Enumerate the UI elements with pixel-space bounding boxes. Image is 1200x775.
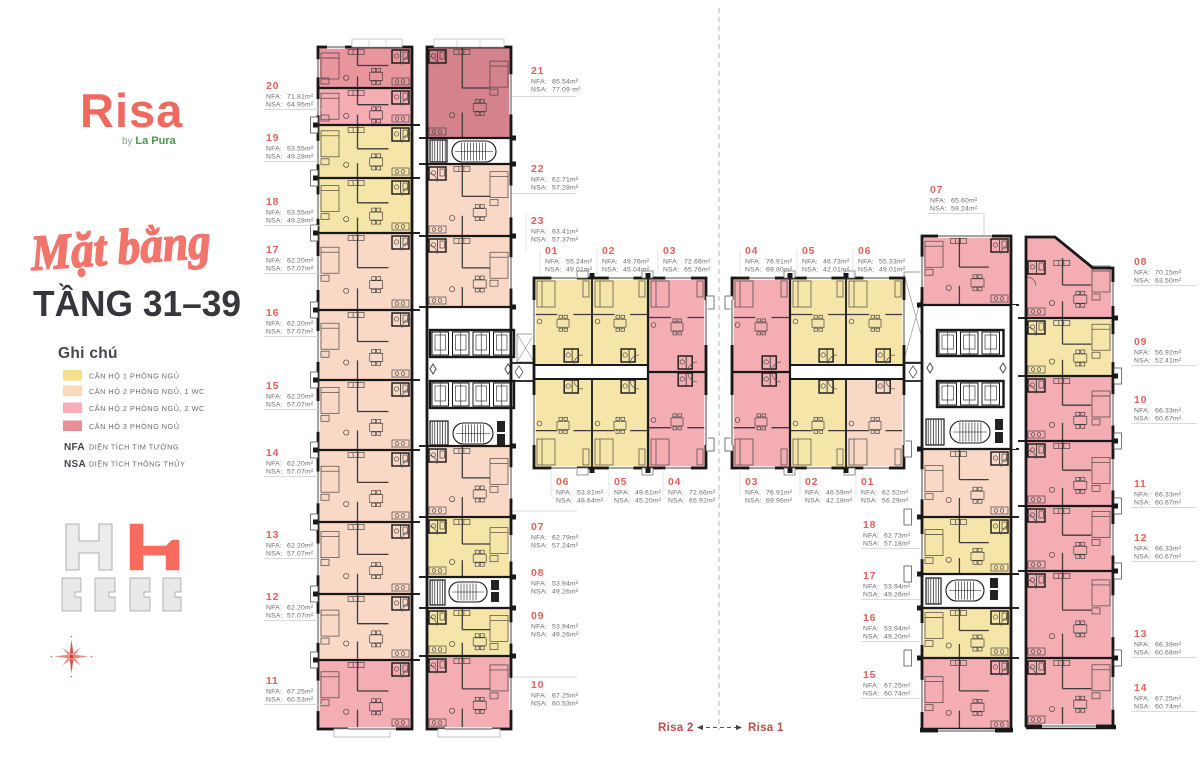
svg-text:DIỆN TÍCH THÔNG THỦY: DIỆN TÍCH THÔNG THỦY	[89, 460, 185, 469]
svg-text:NFA:: NFA:	[531, 581, 547, 588]
svg-text:67.25m²: 67.25m²	[884, 683, 911, 690]
svg-text:14: 14	[1134, 682, 1147, 694]
svg-text:CĂN HỘ 2 PHÒNG NGỦ, 2 WC: CĂN HỘ 2 PHÒNG NGỦ, 2 WC	[89, 404, 205, 413]
svg-text:NSA:: NSA:	[1134, 500, 1151, 507]
svg-text:10: 10	[531, 679, 544, 691]
svg-text:57.28m²: 57.28m²	[552, 185, 579, 192]
svg-text:02: 02	[805, 476, 818, 488]
svg-text:53.94m²: 53.94m²	[884, 584, 911, 591]
svg-text:NSA:: NSA:	[531, 632, 548, 639]
svg-text:NFA:: NFA:	[266, 258, 282, 265]
svg-text:66.39m²: 66.39m²	[1155, 642, 1182, 649]
svg-text:NSA:: NSA:	[266, 469, 283, 476]
svg-text:Risa 1: Risa 1	[748, 722, 784, 734]
svg-text:48.64m²: 48.64m²	[577, 498, 604, 505]
svg-text:NSA:: NSA:	[861, 498, 878, 505]
svg-text:53.94m²: 53.94m²	[552, 581, 579, 588]
svg-text:NSA:: NSA:	[266, 218, 283, 225]
svg-text:69.96m²: 69.96m²	[766, 498, 793, 505]
svg-text:49.28m²: 49.28m²	[287, 154, 314, 161]
svg-text:05: 05	[614, 476, 627, 488]
svg-text:55.24m²: 55.24m²	[566, 259, 593, 266]
svg-text:NFA:: NFA:	[858, 259, 874, 266]
svg-text:62.20m²: 62.20m²	[287, 543, 314, 550]
svg-text:NFA:: NFA:	[531, 79, 547, 86]
svg-text:55.33m²: 55.33m²	[879, 259, 906, 266]
svg-text:NFA:: NFA:	[1134, 546, 1150, 553]
svg-text:57.07m²: 57.07m²	[287, 613, 314, 620]
svg-text:57.18m²: 57.18m²	[884, 541, 911, 548]
svg-text:15: 15	[863, 669, 876, 681]
svg-text:67.25m²: 67.25m²	[552, 693, 579, 700]
svg-text:NSA:: NSA:	[1134, 278, 1151, 285]
svg-text:NSA:: NSA:	[745, 498, 762, 505]
svg-text:45.20m²: 45.20m²	[635, 498, 662, 505]
svg-text:49.01m²: 49.01m²	[879, 267, 906, 274]
svg-text:03: 03	[663, 245, 676, 257]
svg-text:76.91m²: 76.91m²	[766, 259, 793, 266]
svg-text:16: 16	[266, 307, 279, 319]
svg-text:NFA:: NFA:	[863, 626, 879, 633]
svg-text:03: 03	[745, 476, 758, 488]
svg-text:NFA:: NFA:	[266, 605, 282, 612]
svg-text:17: 17	[863, 570, 876, 582]
svg-text:23: 23	[531, 215, 544, 227]
svg-text:42.01m²: 42.01m²	[823, 267, 850, 274]
svg-text:NSA:: NSA:	[1134, 704, 1151, 711]
svg-text:49.20m²: 49.20m²	[884, 634, 911, 641]
svg-text:49.01m²: 49.01m²	[566, 267, 593, 274]
svg-text:NSA:: NSA:	[266, 613, 283, 620]
svg-text:NSA:: NSA:	[266, 102, 283, 109]
svg-text:NFA:: NFA:	[663, 259, 679, 266]
svg-text:NFA:: NFA:	[614, 490, 630, 497]
svg-text:NFA:: NFA:	[668, 490, 684, 497]
svg-text:62.52m²: 62.52m²	[882, 490, 909, 497]
svg-text:NSA:: NSA:	[805, 498, 822, 505]
svg-text:Risa: Risa	[80, 84, 183, 137]
svg-text:08: 08	[531, 567, 544, 579]
svg-text:53.55m²: 53.55m²	[287, 210, 314, 217]
svg-text:18: 18	[863, 519, 876, 531]
svg-text:NFA:: NFA:	[802, 259, 818, 266]
svg-text:11: 11	[1134, 478, 1147, 490]
svg-text:64.95m²: 64.95m²	[287, 102, 314, 109]
svg-text:Ghi chú: Ghi chú	[58, 345, 118, 362]
svg-text:NFA:: NFA:	[266, 146, 282, 153]
svg-text:60.67m²: 60.67m²	[1155, 554, 1182, 561]
svg-text:57.07m²: 57.07m²	[287, 329, 314, 336]
svg-text:NSA:: NSA:	[1134, 554, 1151, 561]
svg-text:NFA:: NFA:	[863, 584, 879, 591]
svg-text:53.81m²: 53.81m²	[577, 490, 604, 497]
svg-text:NSA:: NSA:	[602, 267, 619, 274]
svg-text:NSA:: NSA:	[531, 701, 548, 708]
svg-text:20: 20	[266, 80, 279, 92]
svg-text:60.53m²: 60.53m²	[287, 697, 314, 704]
svg-text:NFA:: NFA:	[1134, 696, 1150, 703]
svg-text:67.25m²: 67.25m²	[287, 689, 314, 696]
svg-text:77.09 m²: 77.09 m²	[552, 87, 581, 94]
svg-text:NFA:: NFA:	[531, 535, 547, 542]
svg-text:62.20m²: 62.20m²	[287, 461, 314, 468]
svg-text:62.79m²: 62.79m²	[552, 535, 579, 542]
svg-text:60.53m²: 60.53m²	[552, 701, 579, 708]
svg-text:NFA:: NFA:	[1134, 270, 1150, 277]
svg-text:15: 15	[266, 380, 279, 392]
svg-text:76.91m²: 76.91m²	[766, 490, 793, 497]
svg-text:19: 19	[266, 132, 279, 144]
svg-text:NSA:: NSA:	[556, 498, 573, 505]
svg-text:CĂN HỘ 2 PHÒNG NGỦ, 1 WC: CĂN HỘ 2 PHÒNG NGỦ, 1 WC	[89, 387, 205, 396]
svg-text:NSA:: NSA:	[545, 267, 562, 274]
svg-text:57.24m²: 57.24m²	[552, 543, 579, 550]
svg-text:NFA:: NFA:	[545, 259, 561, 266]
svg-text:NFA: NFA	[64, 442, 85, 453]
svg-text:13: 13	[1134, 628, 1147, 640]
svg-text:52.41m²: 52.41m²	[1155, 358, 1182, 365]
svg-text:46.73m²: 46.73m²	[823, 259, 850, 266]
svg-text:16: 16	[863, 612, 876, 624]
svg-text:NFA:: NFA:	[1134, 642, 1150, 649]
svg-text:NFA:: NFA:	[602, 259, 618, 266]
svg-text:NFA:: NFA:	[531, 177, 547, 184]
svg-text:NFA:: NFA:	[1134, 350, 1150, 357]
svg-text:14: 14	[266, 447, 279, 459]
svg-text:62.20m²: 62.20m²	[287, 258, 314, 265]
svg-text:NFA:: NFA:	[531, 624, 547, 631]
svg-text:NSA:: NSA:	[663, 267, 680, 274]
svg-text:06: 06	[556, 476, 569, 488]
svg-text:53.94m²: 53.94m²	[552, 624, 579, 631]
svg-text:NFA:: NFA:	[266, 461, 282, 468]
svg-text:NSA:: NSA:	[531, 237, 548, 244]
svg-text:62.71m²: 62.71m²	[552, 177, 579, 184]
svg-text:63.50m²: 63.50m²	[1155, 278, 1182, 285]
svg-text:18: 18	[266, 196, 279, 208]
svg-text:05: 05	[802, 245, 815, 257]
svg-text:CĂN HỘ 3 PHÒNG NGỦ: CĂN HỘ 3 PHÒNG NGỦ	[89, 422, 180, 431]
svg-text:04: 04	[668, 476, 681, 488]
svg-text:10: 10	[1134, 394, 1147, 406]
svg-text:NSA:: NSA:	[863, 592, 880, 599]
svg-text:NFA:: NFA:	[805, 490, 821, 497]
svg-text:60.74m²: 60.74m²	[884, 691, 911, 698]
svg-text:60.67m²: 60.67m²	[1155, 416, 1182, 423]
svg-text:66.33m²: 66.33m²	[1155, 546, 1182, 553]
svg-text:NSA:: NSA:	[1134, 358, 1151, 365]
svg-text:53.55m²: 53.55m²	[287, 146, 314, 153]
svg-text:49.26m²: 49.26m²	[552, 632, 579, 639]
svg-text:NSA:: NSA:	[266, 154, 283, 161]
svg-text:49.28m²: 49.28m²	[287, 218, 314, 225]
svg-text:66.33m²: 66.33m²	[1155, 408, 1182, 415]
svg-text:49.26m²: 49.26m²	[884, 592, 911, 599]
svg-text:46.59m²: 46.59m²	[826, 490, 853, 497]
svg-text:09: 09	[1134, 336, 1147, 348]
svg-text:07: 07	[531, 521, 544, 533]
svg-text:NSA:: NSA:	[531, 589, 548, 596]
svg-text:NFA:: NFA:	[266, 94, 282, 101]
svg-text:NFA:: NFA:	[266, 210, 282, 217]
svg-text:21: 21	[531, 65, 544, 77]
svg-text:TẦNG 31–39: TẦNG 31–39	[33, 283, 241, 324]
svg-text:09: 09	[531, 610, 544, 622]
svg-text:NSA:: NSA:	[668, 498, 685, 505]
svg-text:08: 08	[1134, 256, 1147, 268]
svg-text:57.07m²: 57.07m²	[287, 469, 314, 476]
svg-text:NSA:: NSA:	[863, 691, 880, 698]
svg-text:NSA:: NSA:	[531, 87, 548, 94]
svg-text:NSA:: NSA:	[531, 543, 548, 550]
svg-text:NSA:: NSA:	[531, 185, 548, 192]
svg-text:NFA:: NFA:	[531, 229, 547, 236]
svg-text:72.66m²: 72.66m²	[689, 490, 716, 497]
svg-text:57.07m²: 57.07m²	[287, 266, 314, 273]
svg-text:NSA:: NSA:	[858, 267, 875, 274]
svg-text:56.92m²: 56.92m²	[1155, 350, 1182, 357]
svg-text:NSA:: NSA:	[266, 551, 283, 558]
svg-text:NFA:: NFA:	[266, 543, 282, 550]
svg-text:11: 11	[266, 675, 279, 687]
svg-text:NFA:: NFA:	[266, 689, 282, 696]
svg-text:NSA:: NSA:	[1134, 416, 1151, 423]
svg-text:DIỆN TÍCH TIM TƯỜNG: DIỆN TÍCH TIM TƯỜNG	[89, 443, 179, 452]
svg-text:60.74m²: 60.74m²	[1155, 704, 1182, 711]
svg-text:by La Pura: by La Pura	[122, 135, 177, 147]
svg-text:12: 12	[1134, 532, 1147, 544]
svg-text:02: 02	[602, 245, 615, 257]
svg-text:NSA:: NSA:	[802, 267, 819, 274]
svg-text:62.20m²: 62.20m²	[287, 394, 314, 401]
svg-text:12: 12	[266, 591, 279, 603]
svg-text:69.80m²: 69.80m²	[766, 267, 793, 274]
svg-text:49.76m²: 49.76m²	[623, 259, 650, 266]
svg-text:01: 01	[545, 245, 558, 257]
svg-text:NSA:: NSA:	[745, 267, 762, 274]
svg-text:NSA:: NSA:	[863, 634, 880, 641]
svg-text:06: 06	[858, 245, 871, 257]
svg-text:NSA:: NSA:	[266, 402, 283, 409]
svg-text:NSA:: NSA:	[1134, 650, 1151, 657]
svg-text:01: 01	[861, 476, 874, 488]
svg-text:59.24m²: 59.24m²	[951, 206, 978, 213]
svg-text:NFA:: NFA:	[863, 683, 879, 690]
svg-text:70.15m²: 70.15m²	[1155, 270, 1182, 277]
svg-text:65.92m²: 65.92m²	[689, 498, 716, 505]
svg-text:07: 07	[930, 184, 943, 196]
svg-text:NFA:: NFA:	[863, 533, 879, 540]
svg-text:60.67m²: 60.67m²	[1155, 500, 1182, 507]
svg-text:67.25m²: 67.25m²	[1155, 696, 1182, 703]
svg-text:57.37m²: 57.37m²	[552, 237, 579, 244]
svg-text:49.26m²: 49.26m²	[552, 589, 579, 596]
svg-text:NFA:: NFA:	[1134, 492, 1150, 499]
svg-text:NSA: NSA	[64, 459, 86, 470]
svg-text:NFA:: NFA:	[745, 490, 761, 497]
svg-text:CĂN HỘ 1 PHÒNG NGỦ: CĂN HỘ 1 PHÒNG NGỦ	[89, 372, 180, 381]
svg-text:49.61m²: 49.61m²	[635, 490, 662, 497]
svg-text:NFA:: NFA:	[930, 198, 946, 205]
svg-text:66.33m²: 66.33m²	[1155, 492, 1182, 499]
svg-text:NSA:: NSA:	[266, 697, 283, 704]
svg-text:56.29m²: 56.29m²	[882, 498, 909, 505]
svg-text:63.41m²: 63.41m²	[552, 229, 579, 236]
svg-text:57.07m²: 57.07m²	[287, 402, 314, 409]
svg-text:53.94m²: 53.94m²	[884, 626, 911, 633]
svg-text:NSA:: NSA:	[266, 329, 283, 336]
svg-text:22: 22	[531, 163, 544, 175]
svg-text:NFA:: NFA:	[266, 394, 282, 401]
svg-text:NSA:: NSA:	[614, 498, 631, 505]
svg-text:04: 04	[745, 245, 758, 257]
svg-text:NSA:: NSA:	[266, 266, 283, 273]
svg-text:NFA:: NFA:	[556, 490, 572, 497]
svg-text:60.68m²: 60.68m²	[1155, 650, 1182, 657]
svg-text:NSA:: NSA:	[863, 541, 880, 548]
svg-text:NFA:: NFA:	[861, 490, 877, 497]
svg-text:72.66m²: 72.66m²	[684, 259, 711, 266]
svg-text:62.20m²: 62.20m²	[287, 321, 314, 328]
svg-text:Risa 2: Risa 2	[658, 722, 694, 734]
svg-text:13: 13	[266, 529, 279, 541]
svg-text:NFA:: NFA:	[266, 321, 282, 328]
svg-text:62.73m²: 62.73m²	[884, 533, 911, 540]
svg-text:NFA:: NFA:	[745, 259, 761, 266]
svg-text:71.81m²: 71.81m²	[287, 94, 314, 101]
svg-text:NFA:: NFA:	[531, 693, 547, 700]
svg-text:62.20m²: 62.20m²	[287, 605, 314, 612]
svg-text:85.54m²: 85.54m²	[552, 79, 579, 86]
svg-text:NSA:: NSA:	[930, 206, 947, 213]
svg-text:57.07m²: 57.07m²	[287, 551, 314, 558]
svg-text:65.76m²: 65.76m²	[684, 267, 711, 274]
svg-text:NFA:: NFA:	[1134, 408, 1150, 415]
svg-text:65.60m²: 65.60m²	[951, 198, 978, 205]
svg-text:17: 17	[266, 244, 279, 256]
svg-text:45.04m²: 45.04m²	[623, 267, 650, 274]
svg-text:42.18m²: 42.18m²	[826, 498, 853, 505]
